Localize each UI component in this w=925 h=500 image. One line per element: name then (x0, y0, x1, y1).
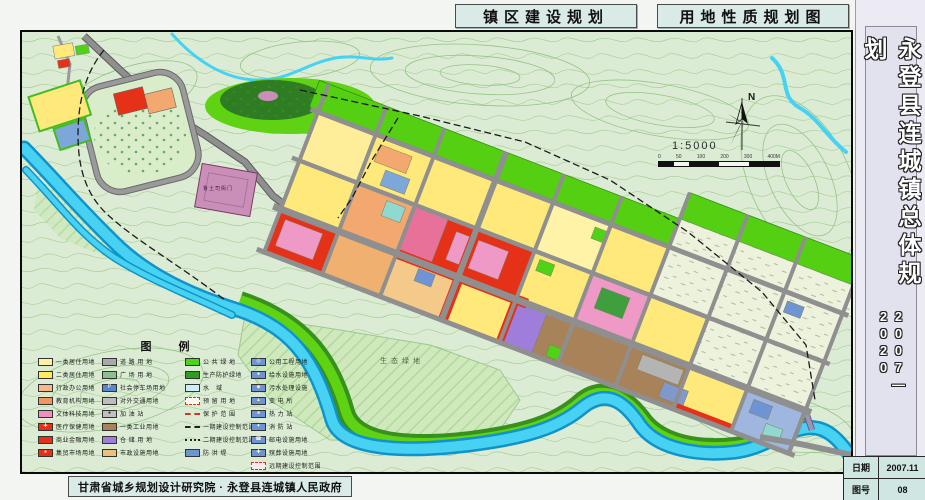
title-box-construction-plan: 镇区建设规划 (455, 4, 637, 28)
legend-swatch: ▲ (251, 397, 266, 405)
legend-label: 污水处理设施 (269, 383, 308, 392)
legend-label: 文体科技用地 (56, 409, 95, 418)
legend-label: 一类工业用地 (120, 422, 159, 431)
scale-tick: 300 (744, 154, 752, 160)
legend-title: 图 例 (106, 338, 236, 354)
legend-swatch: ■ (251, 410, 266, 418)
map-frame: 鲁土司衙门 生态绿地 N 1:5000 050100200300400M 图 例 (20, 30, 853, 474)
legend: 图 例 一类居住用地二类居住用地行政办公用地教育机构用地文体科技用地✚医疗保健用… (36, 338, 336, 494)
legend-item: ●给水设施用地 (251, 368, 321, 381)
legend-item: 远期建设控制范围 (251, 459, 321, 472)
legend-swatch (185, 358, 200, 366)
legend-swatch (185, 410, 200, 418)
legend-item: 文体科技用地 (38, 407, 95, 420)
legend-item: 教育机构用地 (38, 394, 95, 407)
legend-item: ✦消 防 站 (251, 420, 321, 433)
legend-item: ✚殡葬设施用地 (251, 446, 321, 459)
stamp-table: 日期 2007.11 图号 08 (843, 456, 925, 500)
legend-swatch (102, 423, 117, 431)
legend-swatch (185, 436, 200, 444)
legend-swatch (38, 410, 53, 418)
scale-segment (689, 162, 719, 166)
legend-label: 变 电 所 (269, 396, 293, 405)
legend-label: 商业金融用地 (56, 435, 95, 444)
legend-item: 商业金融用地 (38, 433, 95, 446)
legend-label: 二类居住用地 (56, 370, 95, 379)
scale-tick: 200 (720, 154, 728, 160)
legend-label: 给水设施用地 (269, 370, 308, 379)
scale-tick: 50 (676, 154, 682, 160)
legend-item: 仓 储 用 地 (102, 433, 166, 446)
legend-swatch: ☎ (251, 436, 266, 444)
legend-symbol-icon: ◎ (256, 359, 260, 364)
legend-label: 保 护 范 围 (203, 409, 236, 418)
scale-bar-segments (658, 161, 780, 167)
legend-swatch: ◎ (251, 358, 266, 366)
legend-label: 加 油 站 (120, 409, 144, 418)
compass-n-label: N (748, 92, 755, 103)
legend-item: 一类工业用地 (102, 420, 166, 433)
title-sidebar: 永登县连城镇总体规划 2007—2020 日期 2007.11 图号 08 (855, 0, 925, 500)
date-label-cell: 日期 (844, 457, 878, 478)
legend-label: 教育机构用地 (56, 396, 95, 405)
legend-swatch (38, 397, 53, 405)
legend-swatch (38, 384, 53, 392)
date-value-cell: 2007.11 (879, 457, 925, 478)
legend-item: 保 护 范 围 (185, 407, 255, 420)
scale-segment (659, 162, 674, 166)
legend-symbol-icon: ■ (257, 411, 260, 416)
legend-label: 对外交通用地 (120, 396, 159, 405)
legend-item: 行政办公用地 (38, 381, 95, 394)
legend-swatch (102, 358, 117, 366)
legend-item: 防 洪 堤 (185, 446, 255, 459)
legend-column: 道 路 用 地广 场 用 地P社会停车场用地对外交通用地●加 油 站一类工业用地… (102, 355, 166, 459)
plan-sheet: 镇区建设规划 用地性质规划图 (0, 0, 925, 500)
legend-label: 公 共 绿 地 (203, 357, 236, 366)
legend-label: 市政设施用地 (120, 448, 159, 457)
legend-symbol-icon: ◆ (257, 385, 261, 390)
legend-swatch (38, 358, 53, 366)
legend-item: 生产防护绿地 (185, 368, 255, 381)
sidebar-panel: 永登县连城镇总体规划 2007—2020 (865, 26, 917, 456)
legend-swatch (102, 371, 117, 379)
plan-title-vertical: 永登县连城镇总体规划 (857, 37, 925, 303)
legend-column: ◎公用工程用地●给水设施用地◆污水处理设施▲变 电 所■热 力 站✦消 防 站☎… (251, 355, 321, 472)
legend-item: 公 共 绿 地 (185, 355, 255, 368)
legend-item: 广 场 用 地 (102, 368, 166, 381)
legend-label: 二期建设控制范围 (203, 435, 255, 444)
legend-item: ■热 力 站 (251, 407, 321, 420)
scale-text: 1:5000 (672, 140, 718, 152)
legend-label: 预 留 用 地 (203, 396, 236, 405)
legend-swatch: ✦ (251, 423, 266, 431)
scale-segment (719, 162, 749, 166)
legend-symbol-icon: ▲ (256, 398, 261, 403)
legend-symbol-icon: ● (108, 411, 111, 416)
legend-label: 水 域 (203, 383, 223, 392)
legend-label: 道 路 用 地 (120, 357, 153, 366)
legend-label: 生产防护绿地 (203, 370, 242, 379)
legend-label: 仓 储 用 地 (120, 435, 153, 444)
legend-item: 二类居住用地 (38, 368, 95, 381)
legend-label: 一类居住用地 (56, 357, 95, 366)
legend-swatch (185, 384, 200, 392)
sheet-label-cell: 图号 (844, 479, 878, 500)
legend-item: ◎公用工程用地 (251, 355, 321, 368)
legend-column: 一类居住用地二类居住用地行政办公用地教育机构用地文体科技用地✚医疗保健用地商业金… (38, 355, 95, 459)
legend-swatch (38, 436, 53, 444)
legend-swatch (251, 462, 266, 470)
legend-label: 公用工程用地 (269, 357, 308, 366)
legend-item: 二期建设控制范围 (185, 433, 255, 446)
legend-item: ◆污水处理设施 (251, 381, 321, 394)
legend-symbol-icon: ● (257, 372, 260, 377)
legend-item: P社会停车场用地 (102, 381, 166, 394)
scale-segment (749, 162, 779, 166)
legend-label: 防 洪 堤 (203, 448, 227, 457)
title-box-landuse-map: 用地性质规划图 (657, 4, 849, 28)
scale-tick: 100 (697, 154, 705, 160)
sheet-value-cell: 08 (879, 479, 925, 500)
legend-item: ☎邮电设施用地 (251, 433, 321, 446)
legend-swatch (185, 449, 200, 457)
legend-item: ▲变 电 所 (251, 394, 321, 407)
legend-item: 一期建设控制范围 (185, 420, 255, 433)
scale-tick-labels: 050100200300400M (658, 154, 780, 160)
legend-label: 远期建设控制范围 (269, 461, 321, 470)
scale-segment (674, 162, 689, 166)
legend-label: 消 防 站 (269, 422, 293, 431)
legend-item: ✚医疗保健用地 (38, 420, 95, 433)
legend-symbol-icon: ✦ (256, 424, 260, 429)
legend-swatch (185, 397, 200, 405)
legend-label: 邮电设施用地 (269, 435, 308, 444)
legend-item: 道 路 用 地 (102, 355, 166, 368)
legend-label: 热 力 站 (269, 409, 293, 418)
legend-symbol-icon: P (108, 385, 111, 390)
heritage-site-label: 鲁土司衙门 (203, 185, 233, 192)
legend-label: 广 场 用 地 (120, 370, 153, 379)
legend-symbol-icon: ✚ (256, 450, 260, 455)
legend-swatch (38, 371, 53, 379)
legend-swatch: ● (38, 449, 53, 457)
legend-symbol-icon: ☎ (255, 437, 261, 442)
legend-column: 公 共 绿 地生产防护绿地水 域预 留 用 地保 护 范 围一期建设控制范围二期… (185, 355, 255, 459)
legend-item: 水 域 (185, 381, 255, 394)
legend-swatch: ● (102, 410, 117, 418)
legend-symbol-icon: ● (44, 450, 47, 455)
legend-swatch: ✚ (251, 449, 266, 457)
legend-label: 医疗保健用地 (56, 422, 95, 431)
legend-label: 一期建设控制范围 (203, 422, 255, 431)
legend-symbol-icon: ✚ (43, 424, 47, 429)
legend-swatch (185, 371, 200, 379)
legend-item: ●集贸市场用地 (38, 446, 95, 459)
eco-green-label: 生态绿地 (380, 356, 424, 366)
legend-item: 一类居住用地 (38, 355, 95, 368)
legend-swatch (185, 423, 200, 431)
legend-item: ●加 油 站 (102, 407, 166, 420)
legend-swatch (102, 449, 117, 457)
scale-tick: 400M (767, 154, 780, 160)
scale-tick: 0 (658, 154, 661, 160)
legend-swatch: P (102, 384, 117, 392)
legend-label: 殡葬设施用地 (269, 448, 308, 457)
legend-label: 集贸市场用地 (56, 448, 95, 457)
legend-label: 行政办公用地 (56, 383, 95, 392)
legend-item: 预 留 用 地 (185, 394, 255, 407)
legend-swatch (102, 397, 117, 405)
legend-swatch: ✚ (38, 423, 53, 431)
legend-swatch: ● (251, 371, 266, 379)
legend-item: 对外交通用地 (102, 394, 166, 407)
legend-swatch (102, 436, 117, 444)
scale-bar: 050100200300400M (658, 154, 780, 167)
legend-swatch: ◆ (251, 384, 266, 392)
plan-years-vertical: 2007—2020 (876, 309, 906, 455)
legend-item: 市政设施用地 (102, 446, 166, 459)
credit-box: 甘肃省城乡规划设计研究院 · 永登县连城镇人民政府 (68, 476, 352, 497)
legend-label: 社会停车场用地 (120, 383, 166, 392)
